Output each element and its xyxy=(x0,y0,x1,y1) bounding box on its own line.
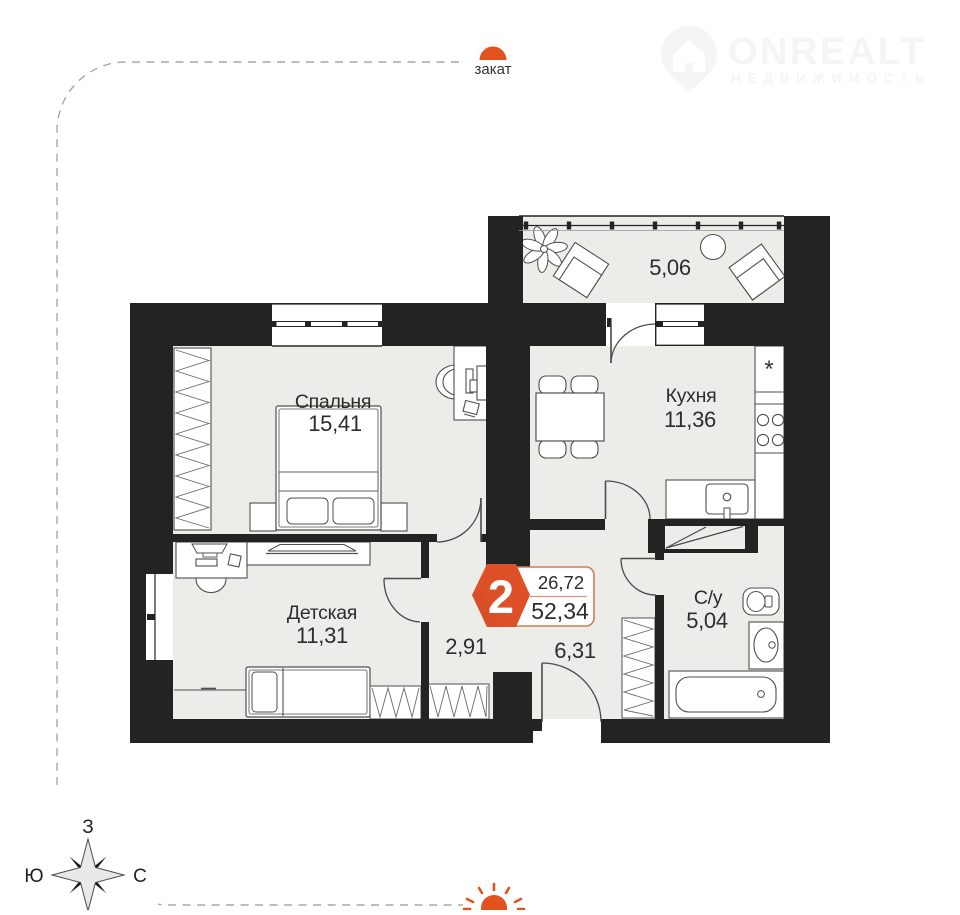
svg-text:52,34: 52,34 xyxy=(531,598,589,624)
svg-text:5,04: 5,04 xyxy=(686,608,728,633)
svg-text:2: 2 xyxy=(488,570,514,623)
svg-text:НЕДВИЖИМОСТЬ: НЕДВИЖИМОСТЬ xyxy=(731,71,931,86)
svg-text:Спальня: Спальня xyxy=(295,391,371,413)
svg-text:11,36: 11,36 xyxy=(664,407,716,432)
svg-text:15,41: 15,41 xyxy=(308,411,362,436)
svg-text:закат: закат xyxy=(475,61,512,78)
svg-text:З: З xyxy=(82,817,93,838)
svg-text:С/у: С/у xyxy=(694,587,723,609)
svg-text:2,91: 2,91 xyxy=(445,634,487,659)
svg-text:Детская: Детская xyxy=(287,602,357,624)
svg-text:Ю: Ю xyxy=(24,866,43,887)
svg-text:6,31: 6,31 xyxy=(554,638,596,663)
svg-text:*: * xyxy=(764,356,773,383)
svg-text:26,72: 26,72 xyxy=(538,572,584,593)
svg-text:11,31: 11,31 xyxy=(296,623,348,648)
svg-text:Кухня: Кухня xyxy=(666,385,717,407)
svg-text:С: С xyxy=(133,866,147,887)
svg-text:ONREALT: ONREALT xyxy=(728,31,926,73)
svg-text:5,06: 5,06 xyxy=(649,255,691,280)
